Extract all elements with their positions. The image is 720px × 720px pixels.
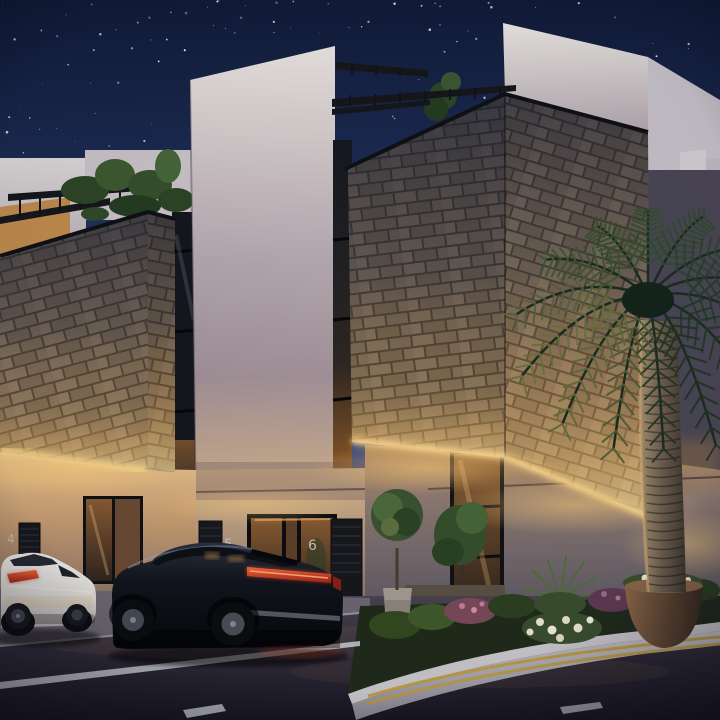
architectural-night-render: 4 5 6 xyxy=(0,0,720,720)
scene-canvas: 4 5 6 xyxy=(0,0,720,720)
vignette xyxy=(0,0,720,720)
